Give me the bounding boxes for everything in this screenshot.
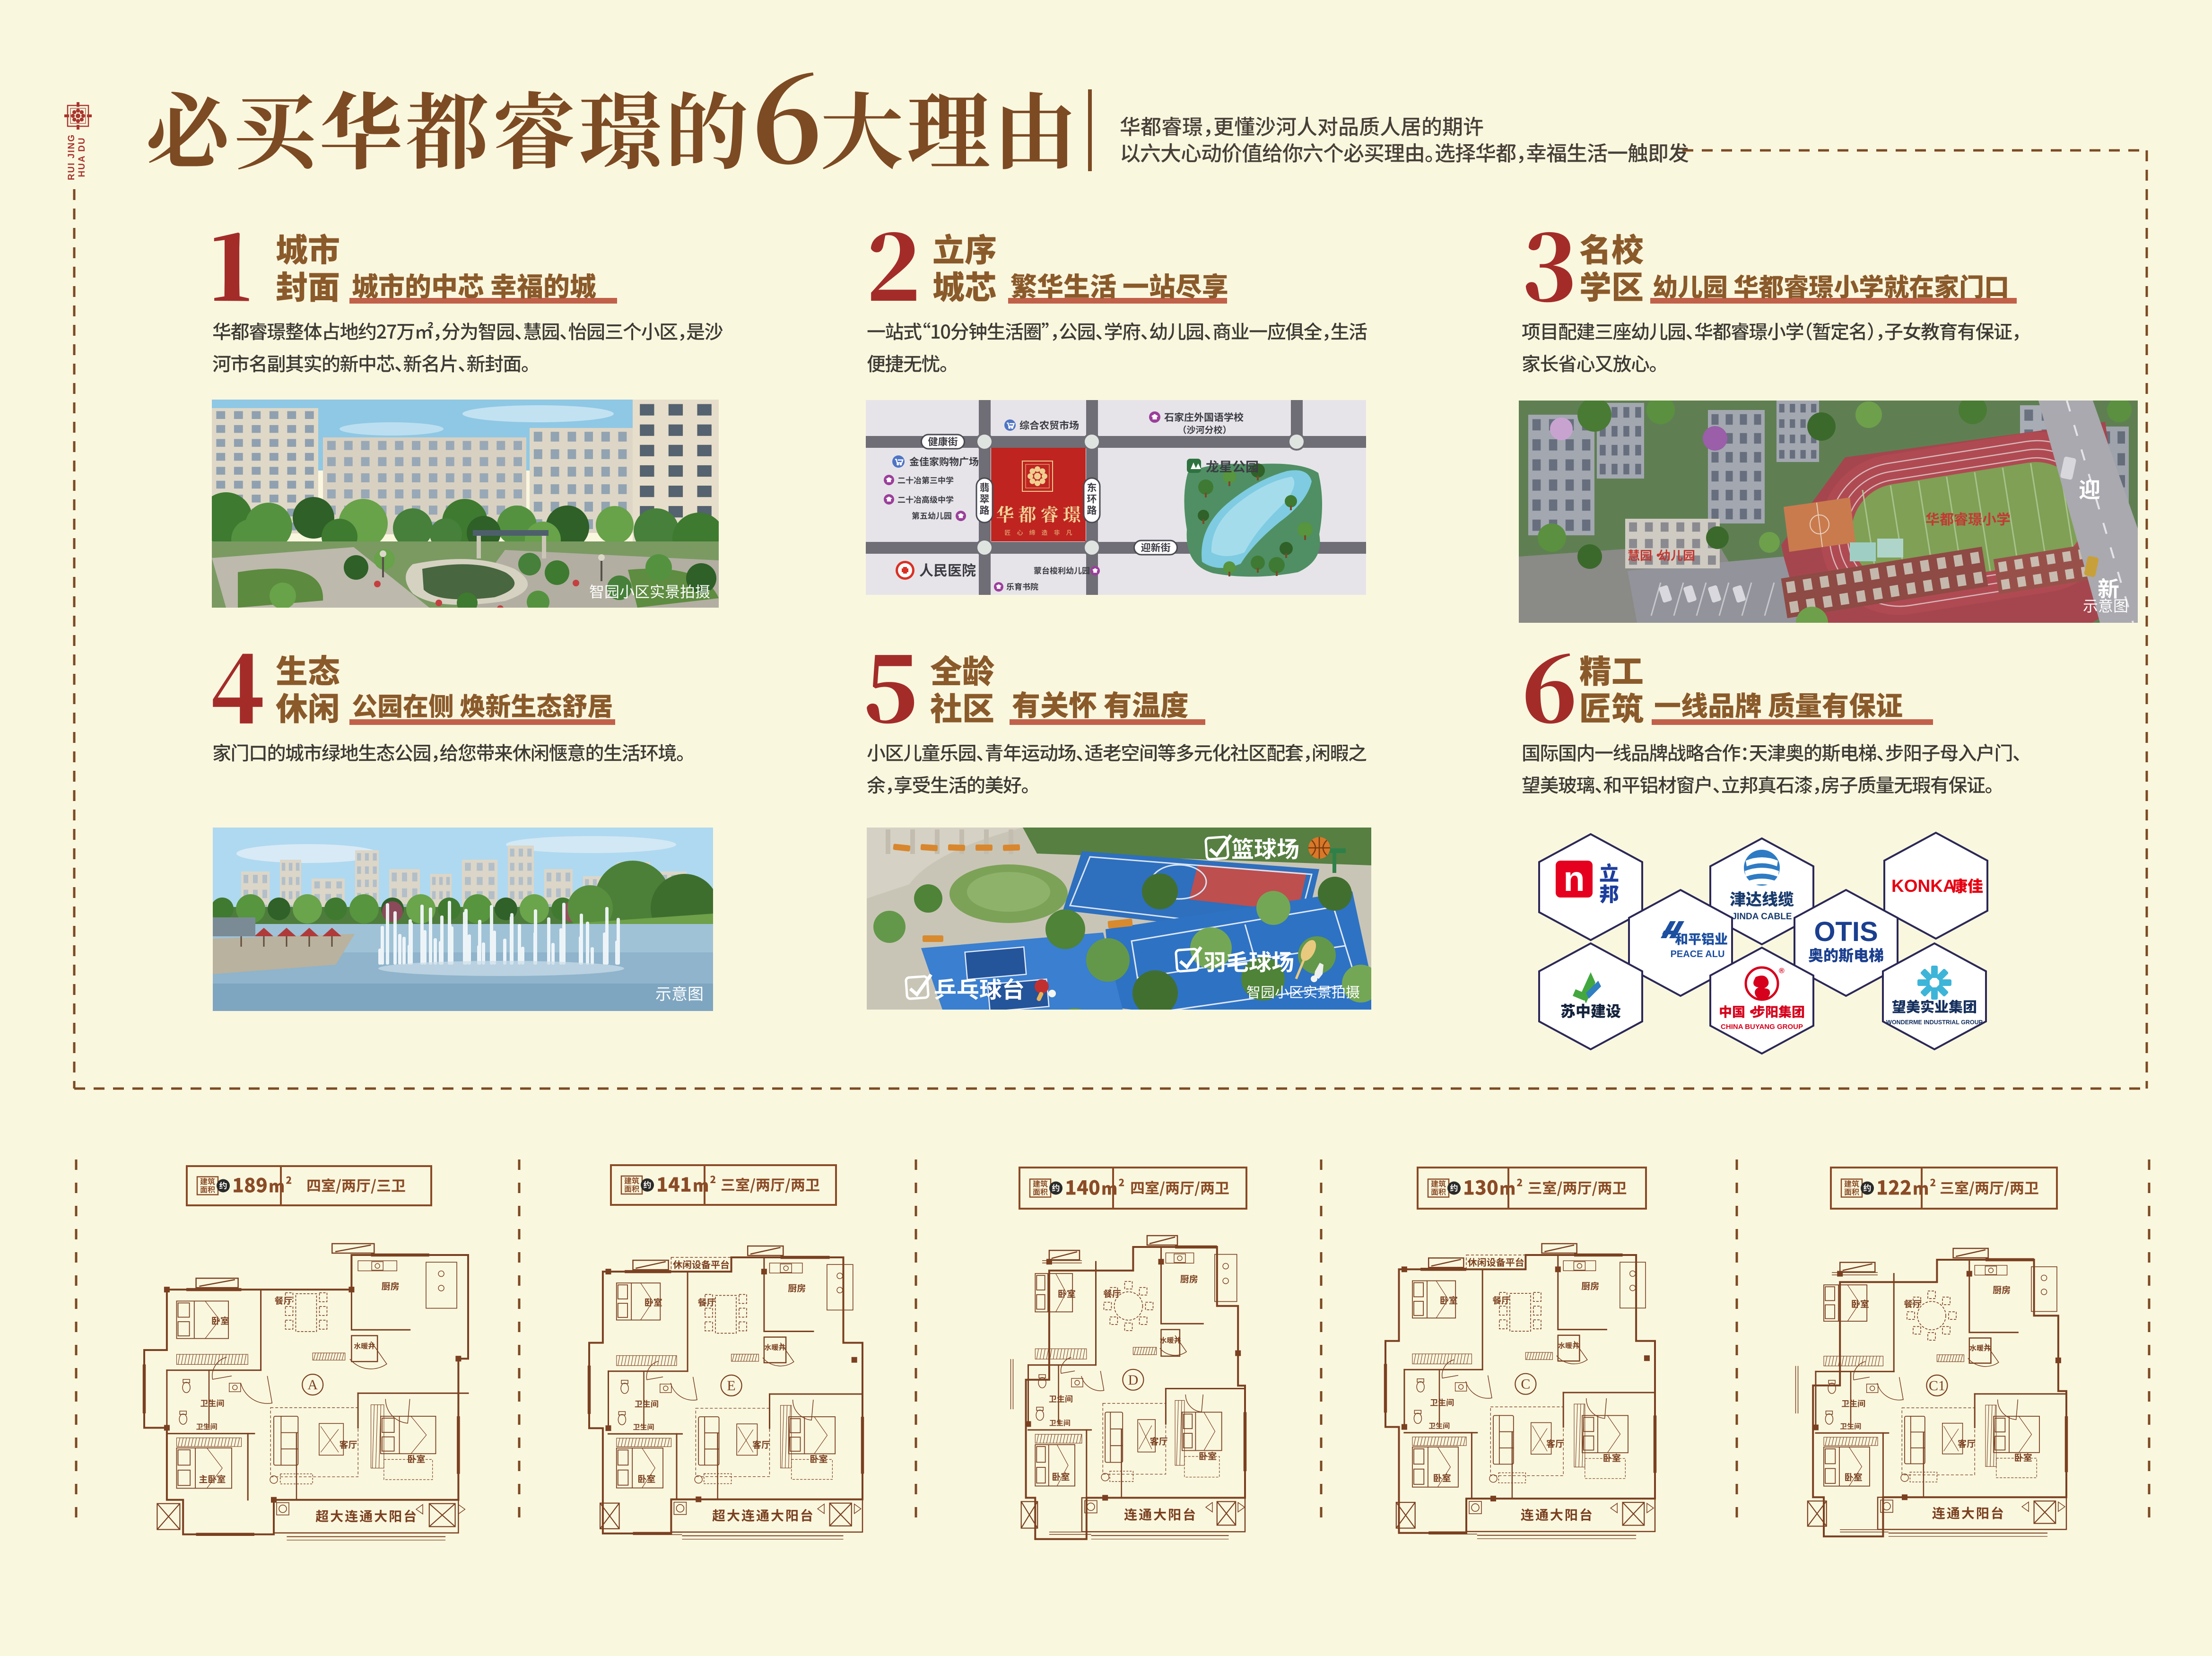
- svg-text:JINDA CABLE: JINDA CABLE: [1732, 912, 1792, 922]
- svg-text:RUI JING: RUI JING: [67, 134, 77, 180]
- svg-text:PEACE ALU: PEACE ALU: [1671, 949, 1725, 959]
- svg-text:D: D: [1128, 1372, 1139, 1388]
- svg-text:KONKA: KONKA: [1891, 876, 1956, 896]
- svg-text:E: E: [727, 1378, 735, 1394]
- svg-text:A: A: [307, 1377, 318, 1393]
- svg-text:CHINA BUYANG GROUP: CHINA BUYANG GROUP: [1721, 1023, 1803, 1031]
- svg-text:WONDERME INDUSTRIAL GROUP: WONDERME INDUSTRIAL GROUP: [1886, 1019, 1983, 1026]
- svg-text:C: C: [1521, 1377, 1530, 1392]
- svg-text:C1: C1: [1929, 1378, 1945, 1394]
- svg-text:OTIS: OTIS: [1814, 916, 1878, 947]
- svg-text:n: n: [1563, 859, 1585, 898]
- svg-text:HUA DU: HUA DU: [77, 137, 87, 177]
- svg-text:®: ®: [1779, 967, 1785, 975]
